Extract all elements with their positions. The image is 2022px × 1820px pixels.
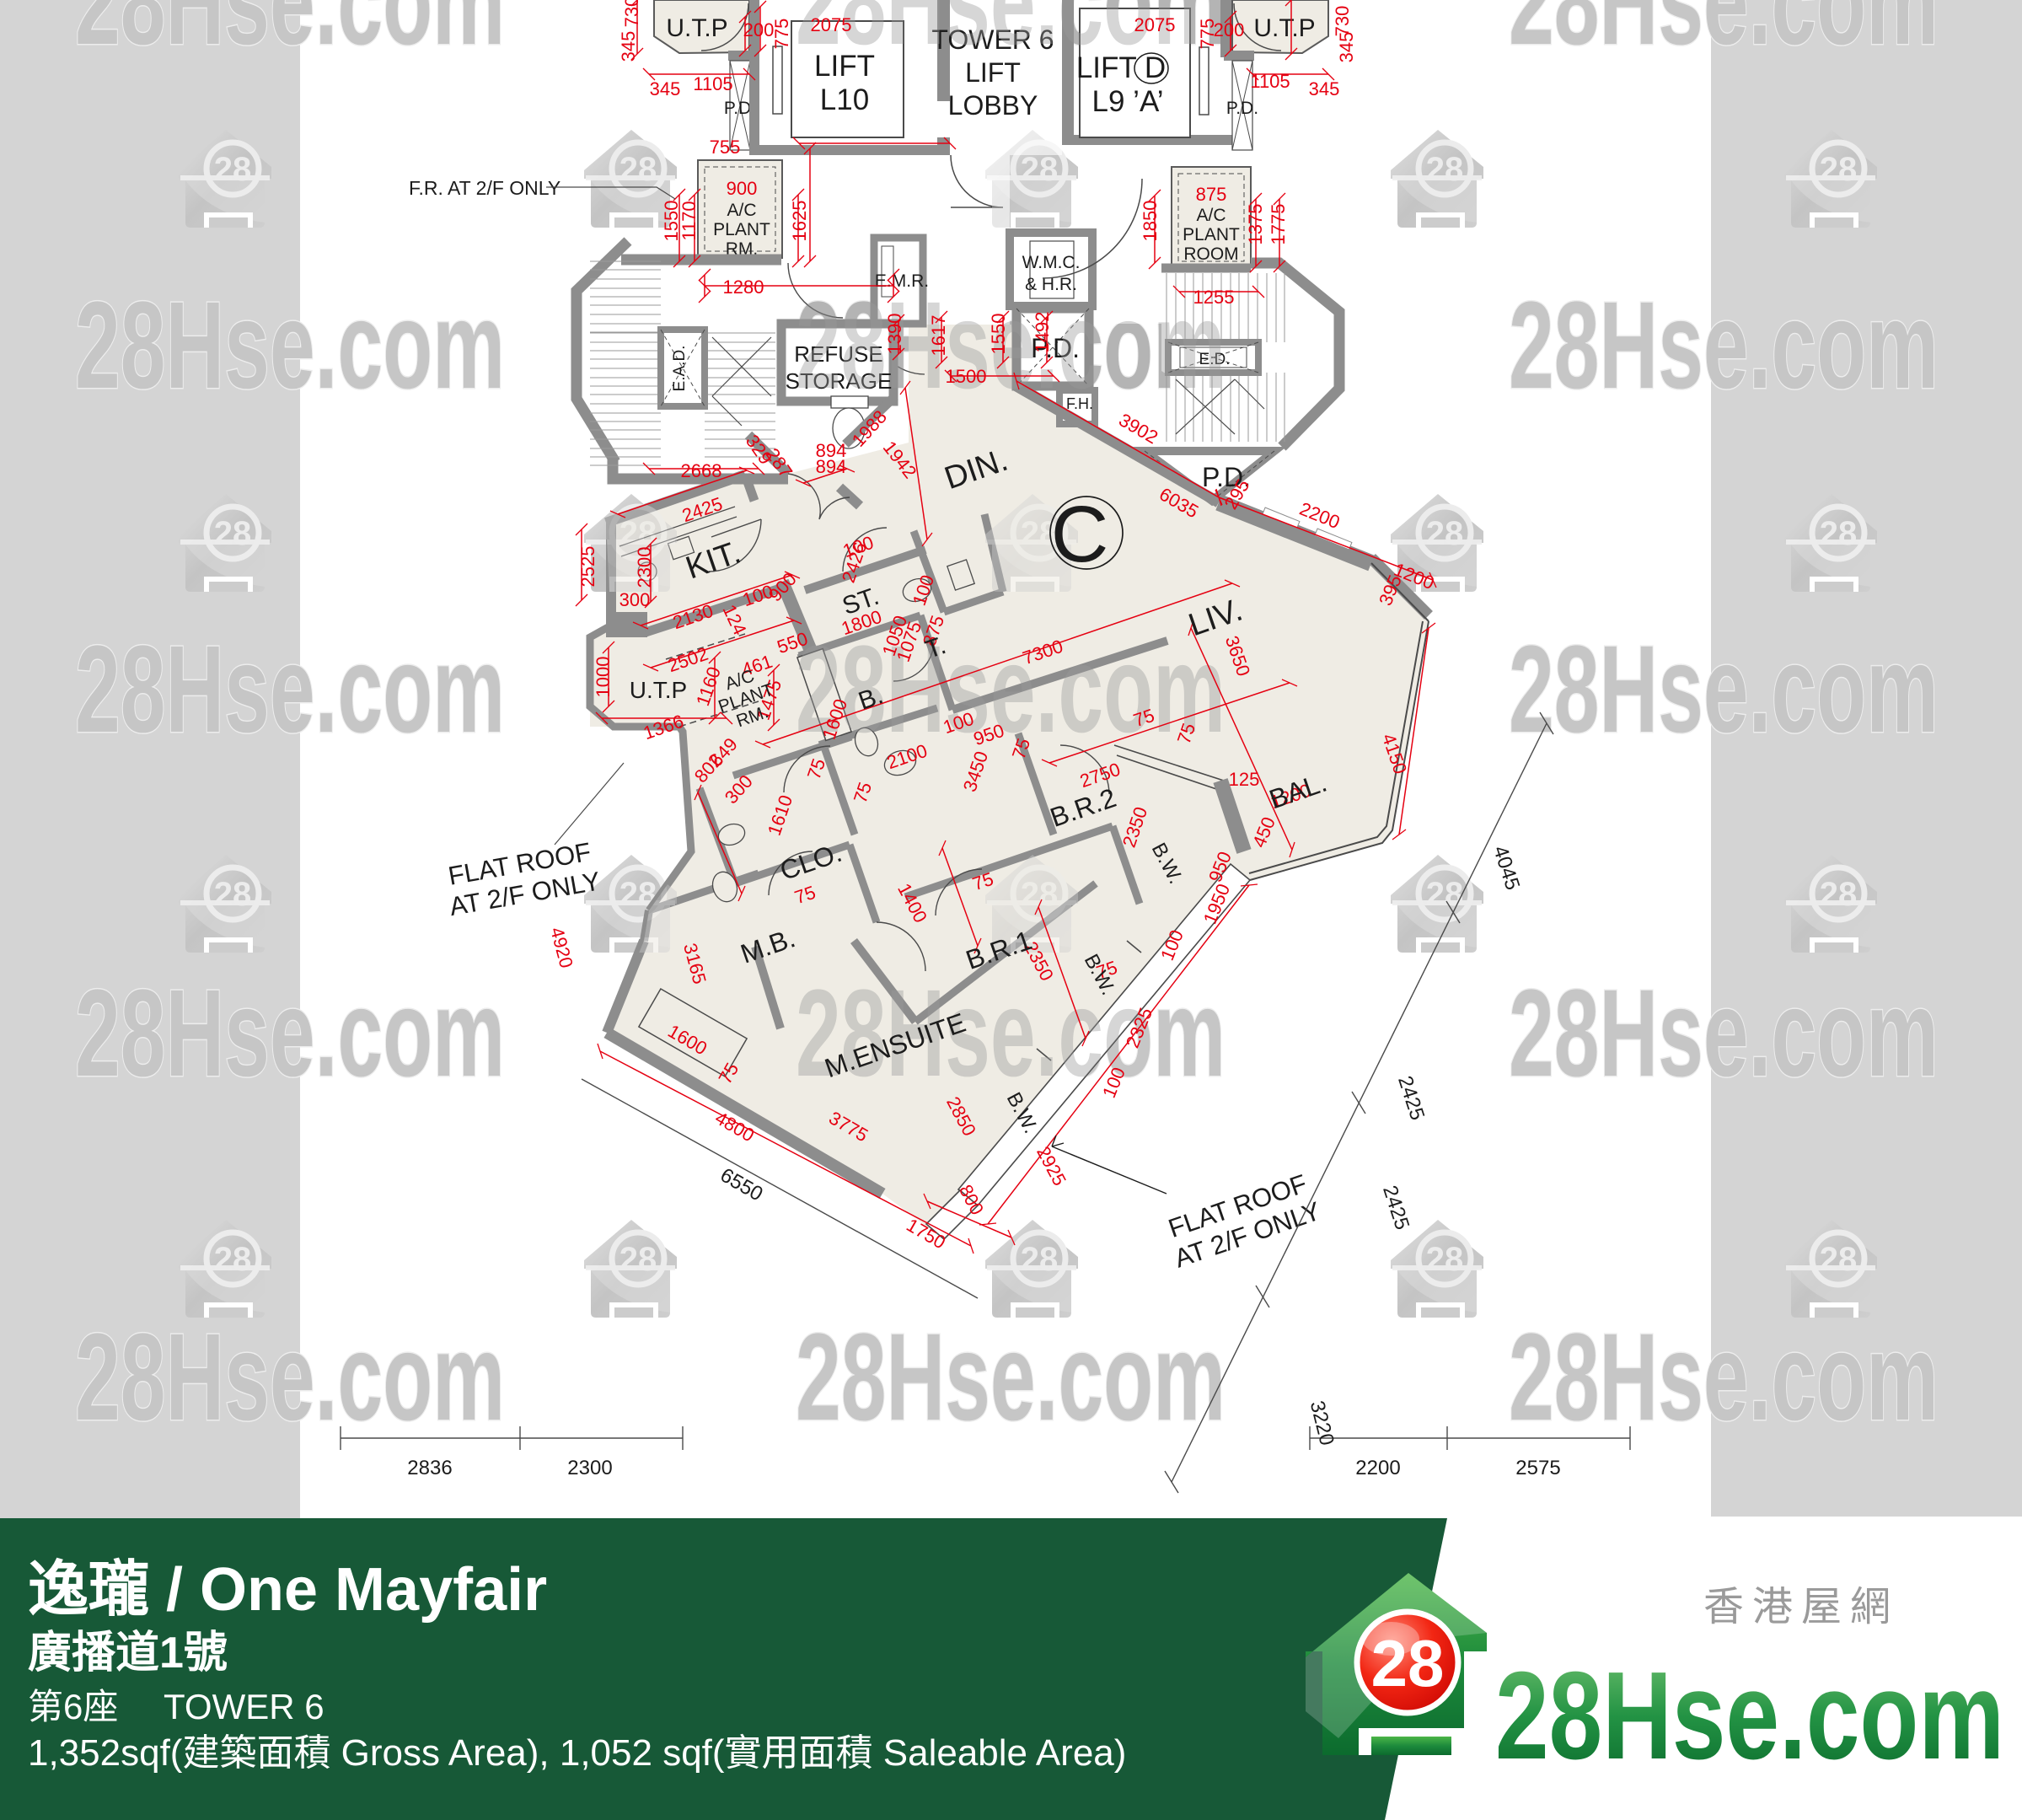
svg-text:28Hse.com: 28Hse.com <box>1495 1646 2004 1785</box>
svg-text:2425: 2425 <box>1393 1073 1429 1123</box>
svg-text:28Hse.com: 28Hse.com <box>75 0 505 71</box>
svg-text:2668: 2668 <box>681 460 722 481</box>
svg-text:1105: 1105 <box>1250 71 1290 92</box>
svg-text:2300: 2300 <box>567 1457 612 1479</box>
svg-text:L10: L10 <box>820 83 869 116</box>
svg-text:775: 775 <box>1197 19 1218 50</box>
svg-text:345: 345 <box>1309 78 1340 99</box>
svg-text:28Hse.com: 28Hse.com <box>1509 620 1939 759</box>
svg-text:28Hse.com: 28Hse.com <box>1509 0 1939 71</box>
svg-text:730: 730 <box>621 0 642 27</box>
svg-text:1105: 1105 <box>693 73 732 94</box>
svg-text:香港屋網: 香港屋網 <box>1703 1585 1899 1629</box>
svg-text:PLANT: PLANT <box>713 220 770 239</box>
svg-text:6550: 6550 <box>716 1163 767 1205</box>
svg-text:28Hse.com: 28Hse.com <box>75 964 505 1103</box>
svg-text:2200: 2200 <box>1355 1457 1400 1479</box>
svg-text:U.T.P: U.T.P <box>1253 14 1315 42</box>
svg-text:28Hse.com: 28Hse.com <box>796 1308 1226 1447</box>
svg-text:E.A.D.: E.A.D. <box>671 346 689 392</box>
svg-text:345: 345 <box>1336 32 1357 63</box>
svg-text:4920: 4920 <box>546 925 577 970</box>
svg-text:1170: 1170 <box>678 201 700 240</box>
svg-text:2075: 2075 <box>811 14 852 35</box>
svg-text:2300: 2300 <box>634 547 655 588</box>
svg-text:200: 200 <box>1214 19 1245 40</box>
svg-text:28Hse.com: 28Hse.com <box>1509 964 1939 1103</box>
svg-text:775: 775 <box>771 19 792 50</box>
svg-text:廣播道1號: 廣播道1號 <box>28 1629 228 1678</box>
svg-text:1,352sqf(建築面積 Gross Area), 1,0: 1,352sqf(建築面積 Gross Area), 1,052 sqf(實用面… <box>28 1732 1126 1774</box>
svg-text:PLANT: PLANT <box>1183 225 1240 244</box>
svg-text:A/C: A/C <box>1196 206 1226 225</box>
svg-text:28Hse.com: 28Hse.com <box>75 1308 505 1447</box>
svg-text:28Hse.com: 28Hse.com <box>1509 1308 1939 1447</box>
svg-text:894: 894 <box>816 456 847 477</box>
svg-text:L9 ’A’: L9 ’A’ <box>1092 85 1164 118</box>
svg-text:逸瓏 / One Mayfair: 逸瓏 / One Mayfair <box>28 1556 547 1624</box>
svg-text:1850: 1850 <box>1140 201 1161 242</box>
svg-text:ROOM: ROOM <box>1183 244 1238 264</box>
svg-text:345: 345 <box>650 78 681 99</box>
svg-text:C: C <box>1051 490 1109 579</box>
svg-text:1390: 1390 <box>884 314 905 355</box>
svg-text:1617: 1617 <box>928 315 949 357</box>
svg-text:200: 200 <box>743 19 775 40</box>
svg-text:4045: 4045 <box>1488 843 1524 893</box>
svg-text:28: 28 <box>1371 1626 1445 1700</box>
svg-text:1775: 1775 <box>1268 204 1289 245</box>
svg-text:1280: 1280 <box>723 276 764 298</box>
svg-text:1255: 1255 <box>1193 287 1235 308</box>
svg-text:1492: 1492 <box>1032 312 1053 353</box>
svg-text:第6座 TOWER 6: 第6座 TOWER 6 <box>28 1687 324 1726</box>
svg-text:900: 900 <box>727 178 758 199</box>
svg-text:1375: 1375 <box>1245 204 1266 245</box>
svg-text:345: 345 <box>618 31 639 62</box>
svg-text:W.M.C.: W.M.C. <box>1022 253 1081 272</box>
svg-text:1625: 1625 <box>789 201 810 242</box>
svg-text:A/C: A/C <box>727 201 756 220</box>
svg-text:U.T.P: U.T.P <box>630 677 687 703</box>
svg-text:125: 125 <box>1229 769 1260 790</box>
svg-text:300: 300 <box>619 589 651 610</box>
svg-text:1500: 1500 <box>946 366 987 387</box>
svg-text:F.R. AT 2/F ONLY: F.R. AT 2/F ONLY <box>409 177 560 199</box>
svg-text:1000: 1000 <box>593 657 614 698</box>
svg-text:28Hse.com: 28Hse.com <box>796 0 1226 71</box>
svg-text:2525: 2525 <box>577 546 598 588</box>
svg-text:LOBBY: LOBBY <box>948 90 1038 121</box>
svg-text:755: 755 <box>710 137 741 158</box>
svg-text:875: 875 <box>1196 184 1227 205</box>
svg-text:U.T.P: U.T.P <box>666 14 727 42</box>
svg-text:1550: 1550 <box>988 314 1009 355</box>
svg-text:P.D.: P.D. <box>1226 99 1258 118</box>
svg-text:28Hse.com: 28Hse.com <box>75 620 505 759</box>
svg-text:28Hse.com: 28Hse.com <box>796 276 1226 415</box>
svg-text:28Hse.com: 28Hse.com <box>75 276 505 415</box>
svg-text:2425: 2425 <box>1378 1183 1413 1232</box>
svg-text:2925: 2925 <box>1032 1143 1070 1189</box>
svg-text:2836: 2836 <box>407 1457 452 1479</box>
svg-text:28Hse.com: 28Hse.com <box>1509 276 1939 415</box>
svg-text:2575: 2575 <box>1515 1457 1560 1479</box>
svg-text:2075: 2075 <box>1134 14 1176 35</box>
